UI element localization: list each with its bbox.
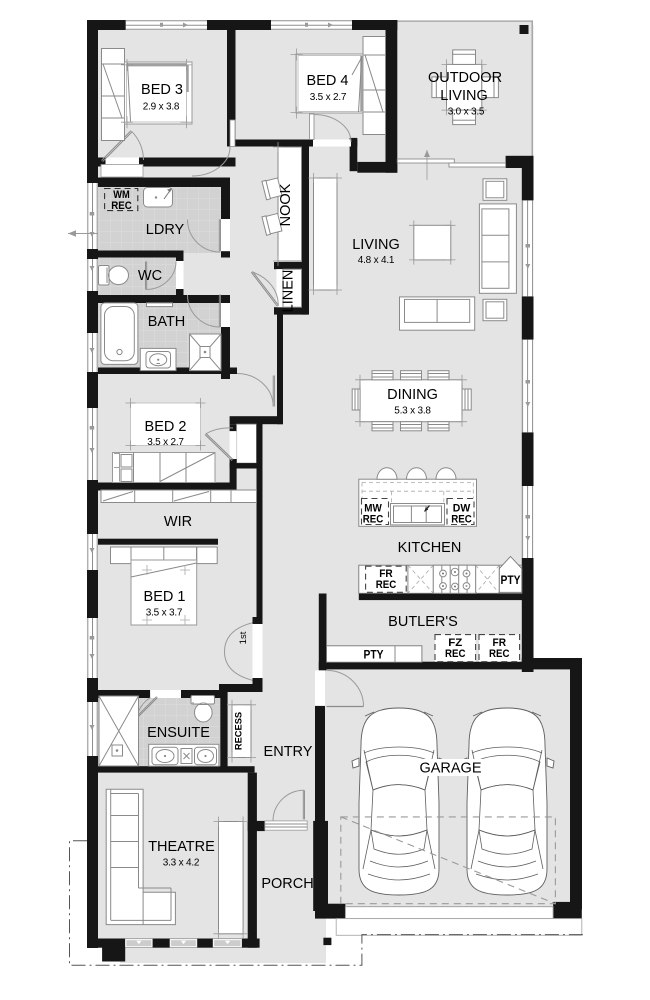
svg-text:3.3 x 4.2: 3.3 x 4.2 <box>163 858 200 869</box>
svg-text:PTY: PTY <box>364 648 384 662</box>
svg-text:BED 3: BED 3 <box>141 82 183 98</box>
svg-text:LIVING: LIVING <box>352 237 400 253</box>
svg-text:3.5 x 2.7: 3.5 x 2.7 <box>310 92 347 103</box>
svg-text:3.5 x 3.7: 3.5 x 3.7 <box>146 608 183 619</box>
svg-text:PTY: PTY <box>501 573 521 587</box>
svg-text:LIVING: LIVING <box>440 88 488 104</box>
svg-text:OUTDOOR: OUTDOOR <box>428 70 502 86</box>
svg-text:WC: WC <box>138 268 162 284</box>
svg-text:LDRY: LDRY <box>146 222 185 238</box>
svg-text:BED 2: BED 2 <box>145 419 187 435</box>
svg-text:KITCHEN: KITCHEN <box>398 540 462 556</box>
svg-text:REC: REC <box>445 648 466 660</box>
svg-text:ENSUITE: ENSUITE <box>147 725 210 741</box>
svg-text:WIR: WIR <box>164 514 192 530</box>
svg-text:NOOK: NOOK <box>278 183 294 226</box>
svg-text:5.3 x 3.8: 5.3 x 3.8 <box>394 406 431 417</box>
svg-text:RECESS: RECESS <box>234 712 244 750</box>
svg-text:BED 1: BED 1 <box>144 589 186 605</box>
svg-text:LINEN: LINEN <box>281 270 297 313</box>
svg-text:BATH: BATH <box>148 314 186 330</box>
svg-text:3.5 x 2.7: 3.5 x 2.7 <box>147 437 184 448</box>
svg-text:3.0 x 3.5: 3.0 x 3.5 <box>448 107 485 118</box>
svg-text:PORCH: PORCH <box>261 876 313 892</box>
svg-text:REC: REC <box>363 514 384 526</box>
svg-text:DINING: DINING <box>387 387 438 403</box>
svg-text:REC: REC <box>451 514 472 526</box>
svg-text:4.8 x 4.1: 4.8 x 4.1 <box>358 255 395 266</box>
svg-text:1st: 1st <box>238 631 249 644</box>
svg-text:ENTRY: ENTRY <box>264 744 313 760</box>
svg-text:THEATRE: THEATRE <box>148 839 215 855</box>
svg-text:BUTLER'S: BUTLER'S <box>388 614 458 630</box>
svg-text:REC: REC <box>489 648 510 660</box>
svg-text:REC: REC <box>111 200 132 212</box>
svg-text:2.9 x 3.8: 2.9 x 3.8 <box>143 102 180 113</box>
svg-text:BED 4: BED 4 <box>307 73 349 89</box>
svg-text:GARAGE: GARAGE <box>419 761 481 777</box>
svg-text:REC: REC <box>376 579 397 591</box>
